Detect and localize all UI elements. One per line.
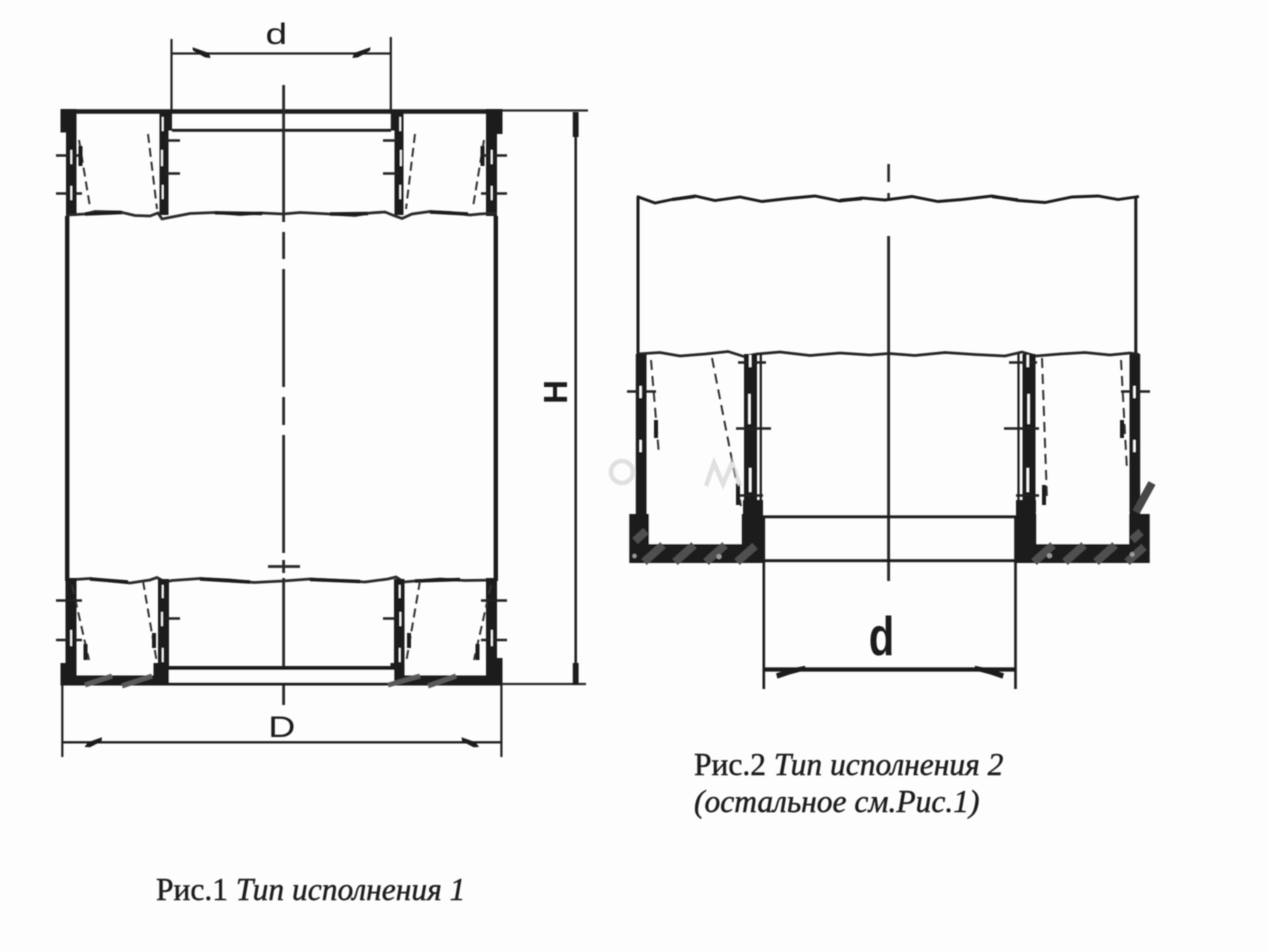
svg-text:d: d — [869, 607, 895, 668]
svg-text:d: d — [265, 18, 287, 51]
svg-text:D: D — [268, 710, 295, 744]
svg-text:Рис.2 Тип исполнения 2: Рис.2 Тип исполнения 2 — [694, 747, 1004, 782]
svg-text:H: H — [537, 380, 574, 404]
svg-text:(остальное см.Рис.1): (остальное см.Рис.1) — [694, 784, 979, 819]
svg-text:Рис.1 Тип исполнения 1: Рис.1 Тип исполнения 1 — [156, 872, 465, 907]
